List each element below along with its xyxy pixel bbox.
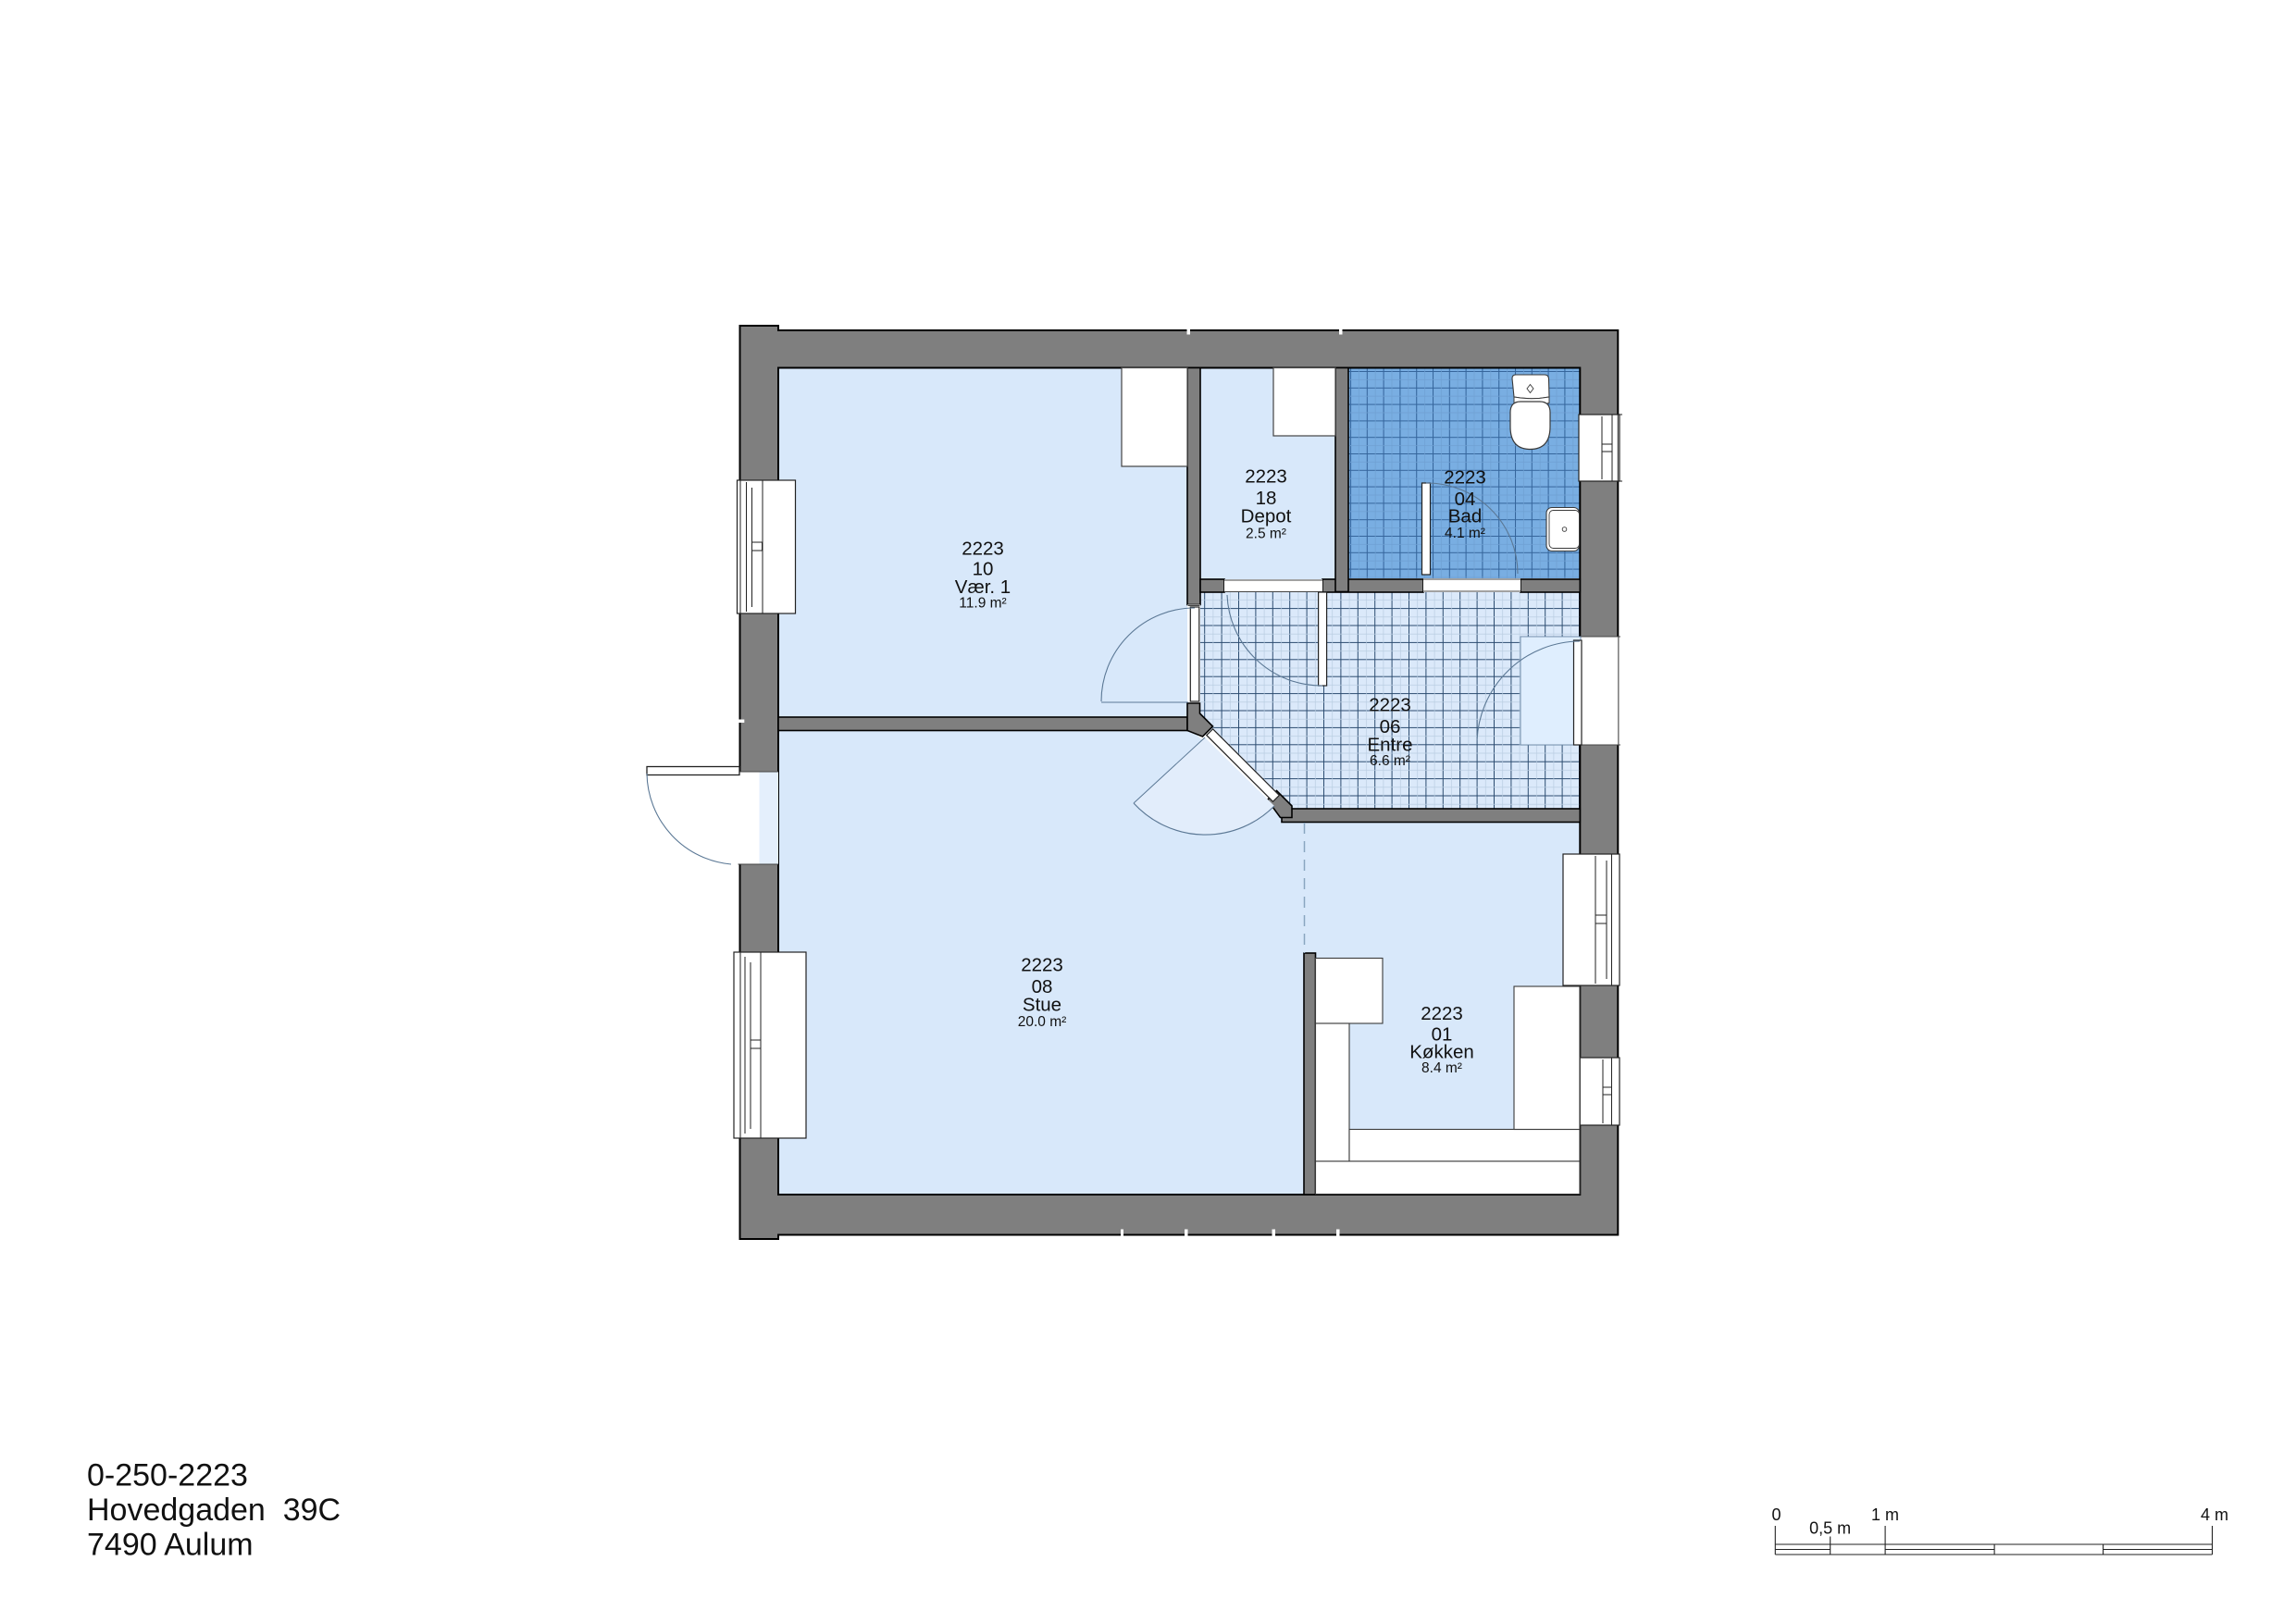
svg-text:Depot: Depot xyxy=(1241,506,1292,527)
svg-text:8.4 m²: 8.4 m² xyxy=(1421,1060,1462,1076)
svg-text:4 m: 4 m xyxy=(2201,1505,2228,1524)
svg-text:2223: 2223 xyxy=(962,538,1004,559)
svg-text:7490 Aulum: 7490 Aulum xyxy=(87,1528,254,1563)
svg-text:Hovedgaden 39C: Hovedgaden 39C xyxy=(87,1493,341,1528)
svg-text:11.9 m²: 11.9 m² xyxy=(959,595,1006,611)
svg-text:0,5 m: 0,5 m xyxy=(1809,1519,1851,1538)
svg-text:0: 0 xyxy=(1771,1505,1781,1524)
svg-text:2.5 m²: 2.5 m² xyxy=(1246,527,1286,542)
svg-text:2223: 2223 xyxy=(1421,1003,1463,1024)
svg-text:4.1 m²: 4.1 m² xyxy=(1445,526,1485,541)
svg-text:20.0 m²: 20.0 m² xyxy=(1018,1014,1067,1030)
svg-text:1 m: 1 m xyxy=(1871,1505,1899,1524)
svg-text:Stue: Stue xyxy=(1023,995,1061,1016)
svg-text:2223: 2223 xyxy=(1021,955,1063,976)
svg-text:2223: 2223 xyxy=(1369,695,1411,716)
svg-text:2223: 2223 xyxy=(1245,466,1287,488)
svg-text:6.6 m²: 6.6 m² xyxy=(1370,753,1410,769)
svg-text:0-250-2223: 0-250-2223 xyxy=(87,1457,248,1493)
svg-text:Bad: Bad xyxy=(1448,506,1482,527)
svg-text:2223: 2223 xyxy=(1444,467,1486,489)
